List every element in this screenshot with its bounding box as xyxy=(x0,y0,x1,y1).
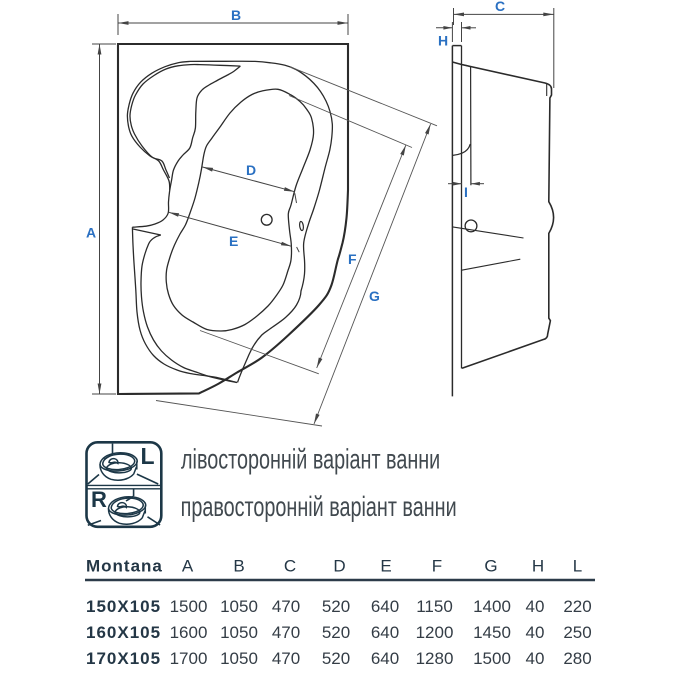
svg-text:I: I xyxy=(464,184,468,200)
svg-text:220: 220 xyxy=(563,597,591,616)
svg-text:H: H xyxy=(438,33,448,49)
svg-text:1500: 1500 xyxy=(473,649,511,668)
svg-text:520: 520 xyxy=(322,597,350,616)
svg-text:G: G xyxy=(484,557,497,576)
svg-text:H: H xyxy=(532,557,544,576)
svg-text:A: A xyxy=(182,557,194,576)
svg-text:470: 470 xyxy=(272,597,300,616)
svg-text:520: 520 xyxy=(322,623,350,642)
svg-text:C: C xyxy=(495,0,505,14)
svg-text:520: 520 xyxy=(322,649,350,668)
svg-text:правосторонній варіант ванни: правосторонній варіант ванни xyxy=(181,492,457,523)
svg-text:40: 40 xyxy=(526,597,545,616)
svg-text:Montana: Montana xyxy=(86,557,163,576)
svg-text:F: F xyxy=(348,251,357,267)
svg-text:L: L xyxy=(573,557,582,576)
svg-text:F: F xyxy=(432,557,442,576)
svg-text:160X105: 160X105 xyxy=(86,623,161,642)
svg-text:1400: 1400 xyxy=(473,597,511,616)
svg-text:640: 640 xyxy=(371,623,399,642)
svg-text:280: 280 xyxy=(563,649,591,668)
svg-text:1600: 1600 xyxy=(170,623,208,642)
svg-text:E: E xyxy=(229,233,238,249)
svg-text:1450: 1450 xyxy=(473,623,511,642)
svg-text:1200: 1200 xyxy=(416,623,454,642)
svg-text:640: 640 xyxy=(371,597,399,616)
svg-text:470: 470 xyxy=(272,649,300,668)
svg-text:170X105: 170X105 xyxy=(86,649,161,668)
svg-text:A: A xyxy=(86,225,96,241)
svg-text:G: G xyxy=(369,288,380,304)
svg-text:40: 40 xyxy=(526,623,545,642)
svg-text:C: C xyxy=(284,557,296,576)
svg-text:640: 640 xyxy=(371,649,399,668)
svg-text:E: E xyxy=(380,557,391,576)
svg-text:150X105: 150X105 xyxy=(86,597,161,616)
svg-text:1150: 1150 xyxy=(416,597,453,616)
svg-text:1700: 1700 xyxy=(170,649,208,668)
svg-text:D: D xyxy=(333,557,345,576)
svg-text:1050: 1050 xyxy=(220,597,258,616)
svg-text:1280: 1280 xyxy=(416,649,454,668)
svg-text:L: L xyxy=(141,443,155,469)
svg-text:B: B xyxy=(233,557,244,576)
svg-text:D: D xyxy=(246,162,256,178)
svg-text:R: R xyxy=(91,487,107,512)
svg-text:B: B xyxy=(231,7,241,23)
svg-text:1050: 1050 xyxy=(220,649,258,668)
svg-text:1050: 1050 xyxy=(220,623,258,642)
svg-text:470: 470 xyxy=(272,623,300,642)
svg-text:40: 40 xyxy=(526,649,545,668)
svg-text:1500: 1500 xyxy=(170,597,208,616)
svg-text:250: 250 xyxy=(563,623,591,642)
svg-text:лівосторонній варіант ванни: лівосторонній варіант ванни xyxy=(181,444,440,475)
